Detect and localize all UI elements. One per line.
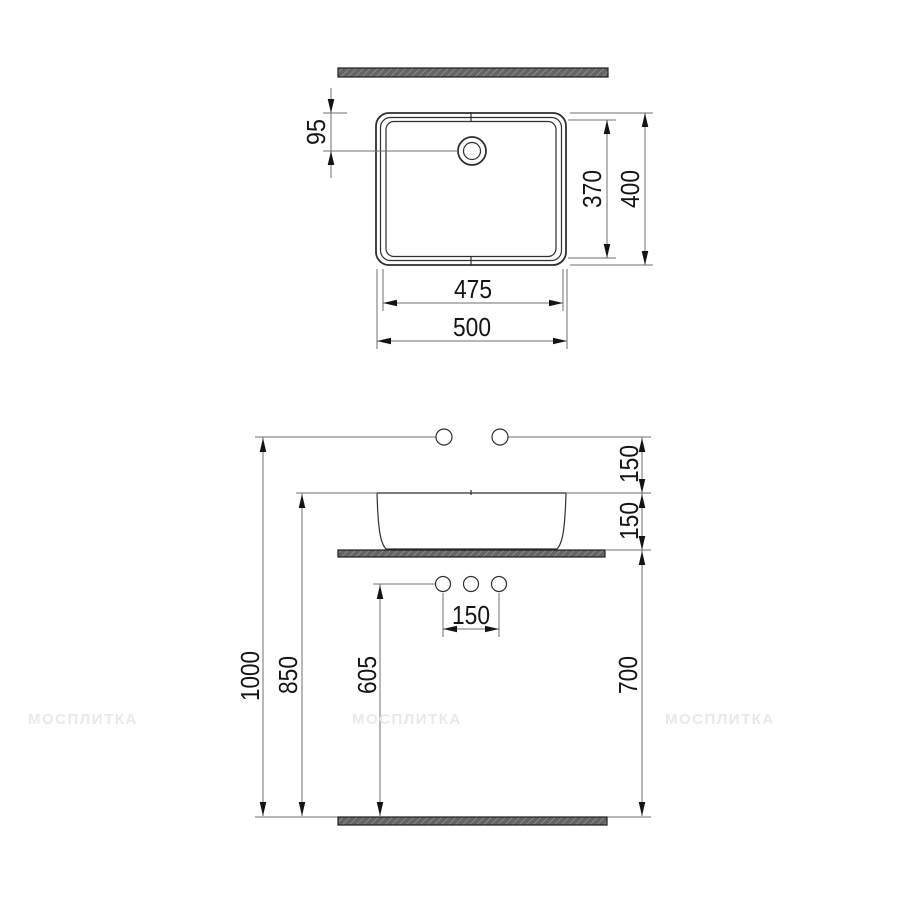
- dim-label-475: 475: [454, 274, 492, 304]
- arrow-up: [328, 151, 335, 165]
- basin-profile: [377, 493, 566, 549]
- arrow-up: [642, 113, 649, 127]
- drawing-canvas: 95 370 400 475: [0, 0, 900, 900]
- dim-label-400: 400: [615, 170, 645, 208]
- arrow-down-floor: [639, 802, 646, 816]
- basin-mid-rim: [381, 118, 562, 261]
- dim-label-150-basin: 150: [614, 502, 644, 540]
- arrow-right: [553, 338, 567, 345]
- dim-label-500: 500: [453, 312, 491, 342]
- dim-right-stack: 150 150 700: [613, 437, 645, 816]
- supply-hole-left: [436, 577, 451, 592]
- dim-label-850: 850: [273, 656, 303, 694]
- arrow-down: [328, 99, 335, 113]
- dim-label-1000: 1000: [235, 651, 265, 701]
- wall-faucet-hole-left: [436, 429, 452, 445]
- faucet-hole-outer: [458, 137, 486, 165]
- basin-outer-rim: [376, 113, 566, 265]
- dim-inner-width: 475: [383, 269, 563, 311]
- arrow-down: [604, 244, 611, 258]
- arrow-up: [604, 120, 611, 134]
- arrow-up: [377, 585, 384, 599]
- watermark-right: МОСПЛИТКА: [665, 711, 775, 728]
- dim-faucet-height: 1000: [235, 437, 266, 816]
- dim-label-150-faucet: 150: [614, 445, 644, 483]
- watermark-left: МОСПЛИТКА: [28, 711, 138, 728]
- arrow-up: [299, 494, 306, 508]
- watermark-center: МОСПЛИТКА: [352, 711, 462, 728]
- arrow-down: [377, 802, 384, 816]
- arrow-down: [299, 802, 306, 816]
- wall-section-bar: [338, 68, 608, 77]
- dim-outlet-height: 605: [352, 584, 383, 816]
- floor-section-bar: [338, 817, 607, 825]
- arrow-left: [377, 338, 391, 345]
- dim-label-700: 700: [613, 656, 643, 694]
- dim-label-605: 605: [352, 656, 382, 694]
- drain-hole-center: [464, 577, 479, 592]
- sink-dimension-drawing: 95 370 400 475: [0, 0, 900, 900]
- faucet-hole-inner: [464, 143, 481, 160]
- dim-label-150-holes: 150: [452, 600, 490, 630]
- basin-inner-edge: [386, 122, 556, 257]
- dim-label-370: 370: [577, 170, 607, 208]
- arrow-up-counter: [639, 551, 646, 565]
- dim-faucet-offset: 95: [301, 88, 458, 178]
- countertop-bar: [338, 550, 605, 557]
- arrow-down: [260, 802, 267, 816]
- arrow-up: [260, 438, 267, 452]
- arrow-down: [642, 251, 649, 265]
- dim-hole-spacing: 150: [443, 593, 499, 637]
- dim-inner-depth: 370: [568, 120, 616, 258]
- dim-label-95: 95: [301, 119, 331, 145]
- arrow-left: [383, 300, 397, 307]
- arrow-right: [549, 300, 563, 307]
- front-view: 150 1000 850 605: [235, 429, 651, 825]
- supply-hole-right: [492, 577, 507, 592]
- watermarks: МОСПЛИТКА МОСПЛИТКА МОСПЛИТКА: [28, 711, 775, 728]
- dim-rim-height: 850: [273, 493, 305, 816]
- wall-faucet-hole-right: [492, 429, 508, 445]
- top-view: 95 370 400 475: [301, 68, 653, 349]
